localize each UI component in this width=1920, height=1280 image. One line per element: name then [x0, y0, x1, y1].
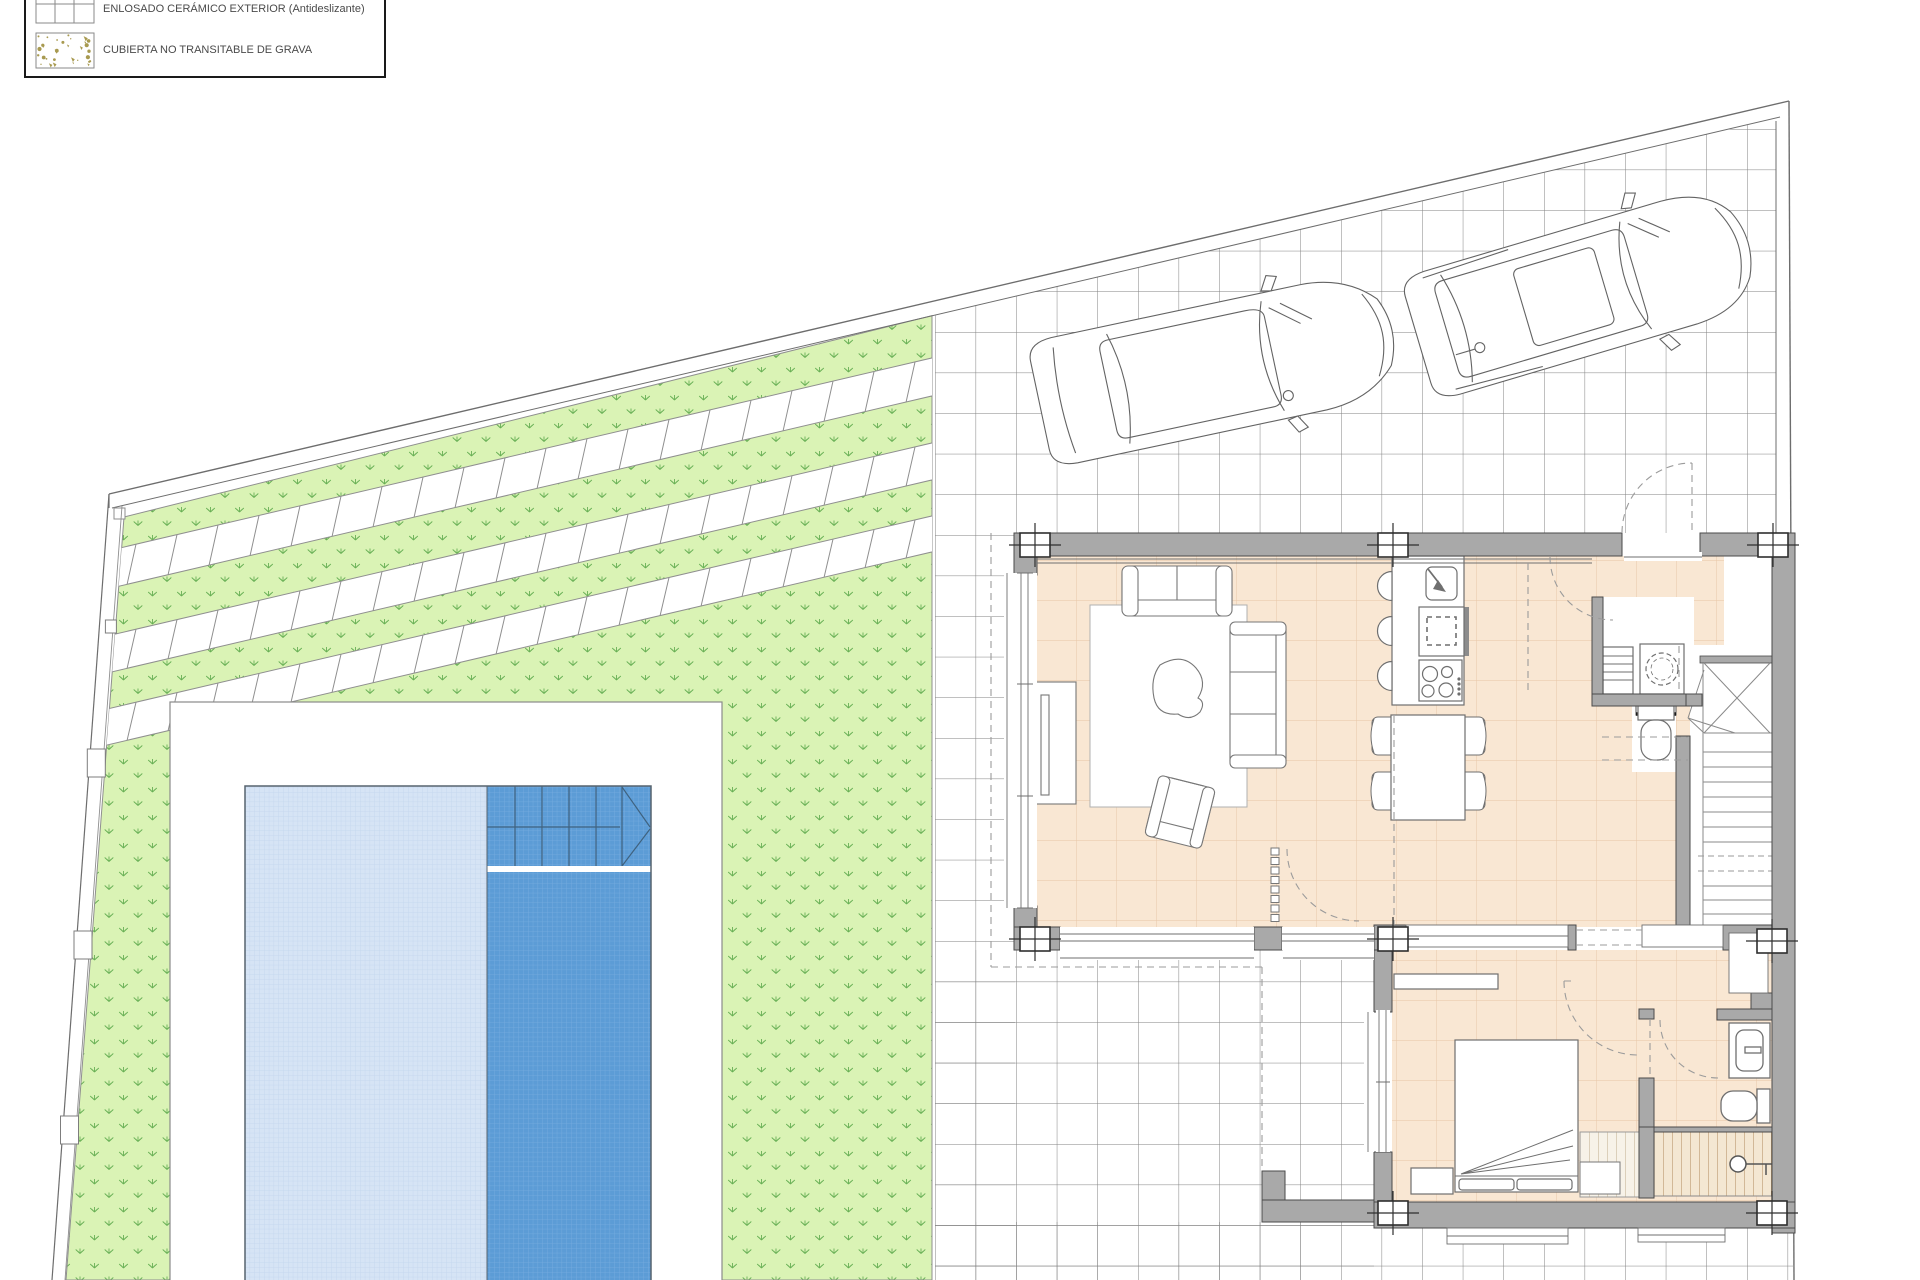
- svg-text:CUBIERTA NO TRANSITABLE DE GRA: CUBIERTA NO TRANSITABLE DE GRAVA: [103, 44, 313, 56]
- svg-text:ENLOSADO CERÁMICO EXTERIOR (An: ENLOSADO CERÁMICO EXTERIOR (Antideslizan…: [103, 2, 365, 15]
